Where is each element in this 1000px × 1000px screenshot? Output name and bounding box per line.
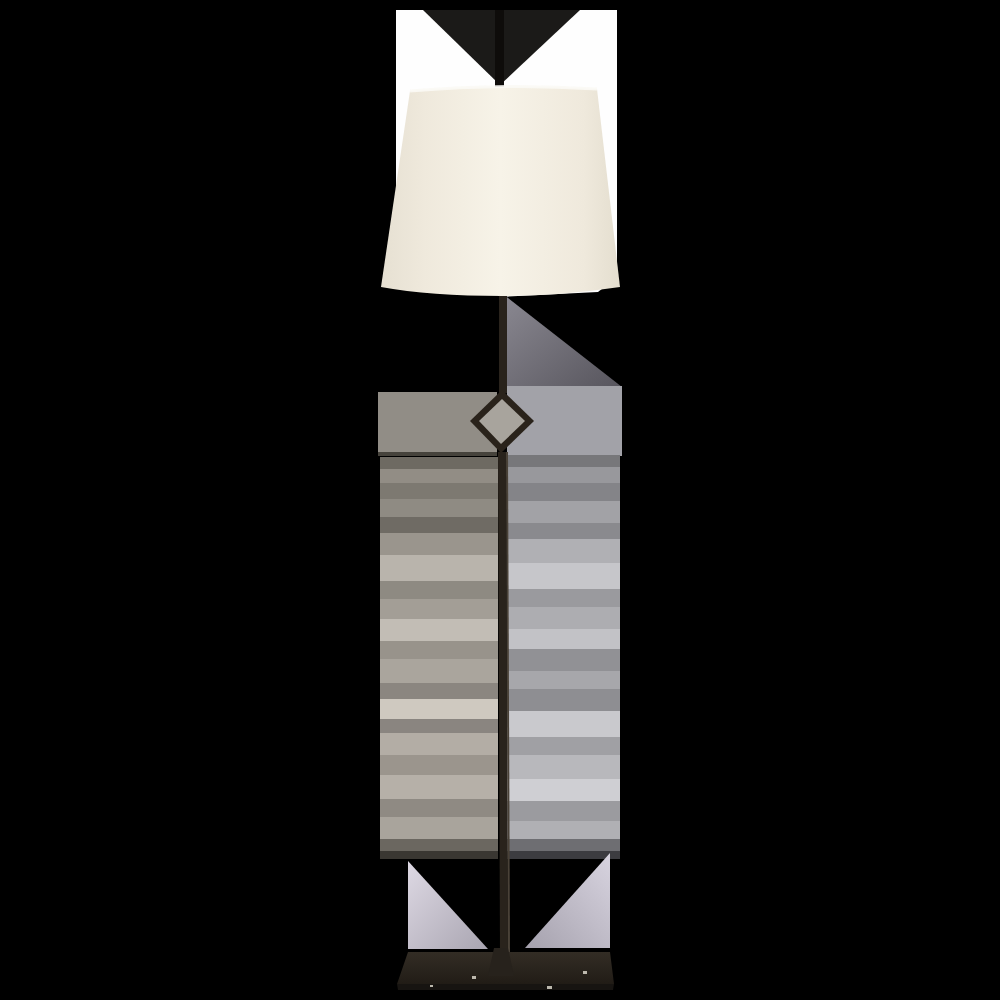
streak-band <box>507 589 620 607</box>
streak-band <box>380 733 498 755</box>
streak-band <box>507 779 620 801</box>
streak-band <box>380 457 498 469</box>
streak-band <box>507 737 620 755</box>
streak-band <box>507 523 620 539</box>
stem-background-streaks-right <box>507 455 620 859</box>
streak-band <box>380 533 498 555</box>
base-front-face <box>397 984 614 990</box>
streak-band <box>380 599 498 619</box>
streak-band <box>507 483 620 501</box>
streak-band <box>380 469 498 483</box>
streak-band <box>507 689 620 711</box>
streak-band <box>507 467 620 483</box>
matte-seam-line <box>378 452 497 456</box>
streak-band <box>507 851 620 859</box>
lamp-shade <box>381 86 620 296</box>
streak-band <box>380 851 498 859</box>
streak-band <box>380 555 498 581</box>
stem-background-streaks-left <box>380 457 498 859</box>
streak-band <box>380 581 498 599</box>
stem-upper-rod <box>495 10 504 89</box>
product-photo-canvas <box>0 0 1000 1000</box>
streak-band <box>507 607 620 629</box>
streak-band <box>507 539 620 563</box>
streak-band <box>507 801 620 821</box>
streak-band <box>380 483 498 499</box>
streak-band <box>380 817 498 839</box>
lamp-shade-body <box>381 86 620 296</box>
streak-band <box>380 683 498 699</box>
streak-band <box>507 649 620 671</box>
base-speck <box>430 985 433 987</box>
floor-lamp-photo <box>0 0 1000 1000</box>
stem-mid-rod <box>499 293 507 393</box>
streak-band <box>380 719 498 733</box>
streak-band <box>507 711 620 737</box>
base-speck <box>583 971 587 974</box>
streak-band <box>507 671 620 689</box>
streak-band <box>507 501 620 523</box>
streak-band <box>380 799 498 817</box>
streak-band <box>380 659 498 683</box>
streak-band <box>380 517 498 533</box>
streak-band <box>380 499 498 517</box>
base-speck <box>547 986 552 989</box>
streak-band <box>380 755 498 775</box>
streak-band <box>507 629 620 649</box>
streak-band <box>380 699 498 719</box>
streak-band <box>380 775 498 799</box>
streak-band <box>380 619 498 641</box>
streak-band <box>507 839 620 851</box>
streak-band <box>507 755 620 779</box>
streak-band <box>507 563 620 589</box>
base-speck <box>472 976 476 979</box>
streak-band <box>380 839 498 851</box>
streak-band <box>380 641 498 659</box>
streak-band <box>507 455 620 467</box>
streak-band <box>507 821 620 839</box>
